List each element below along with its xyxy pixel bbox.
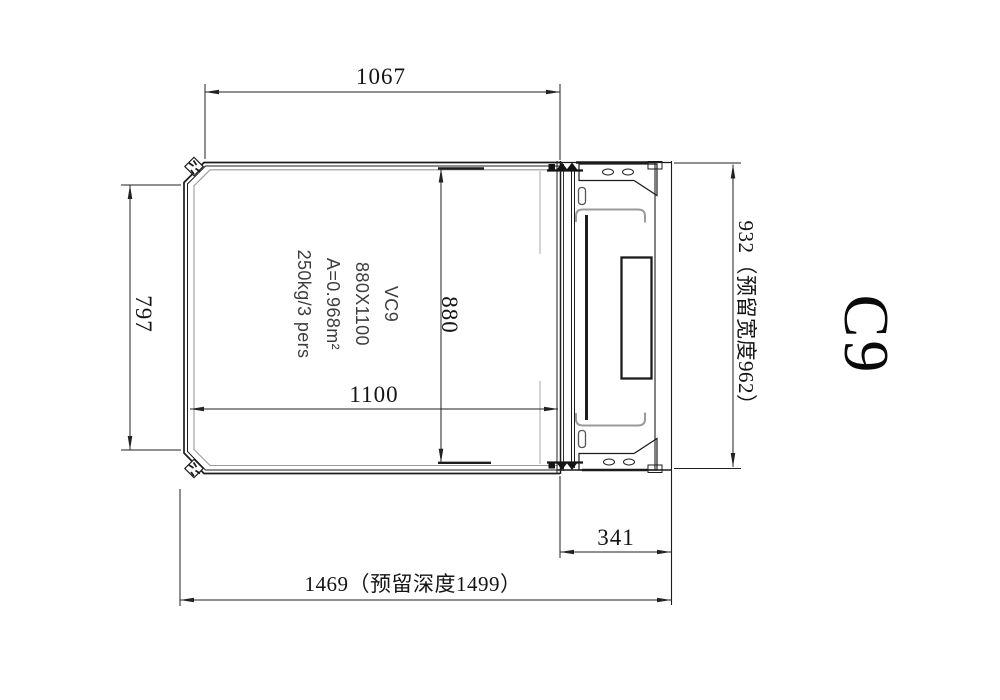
cabin-area: A=0.968m²	[318, 244, 347, 364]
dim-label-left-height: 797	[130, 259, 156, 369]
cabin-info-block: VC9 880X1100 A=0.968m² 250kg/3 pers	[287, 244, 405, 364]
cabin-size: 880X1100	[347, 244, 376, 364]
door-sill-lines	[540, 161, 575, 474]
product-code-label: C9	[833, 280, 903, 390]
header-plate-top	[579, 162, 662, 196]
elevator-plan-drawing: 1067 797 880 1100 341 1469（预留深度1499） 932…	[0, 0, 1000, 700]
dimension-932	[674, 163, 741, 469]
dim-label-cabin-height: 880	[436, 260, 462, 370]
dim-label-total-depth: 1469（预留深度1499）	[283, 568, 543, 598]
cabin-model: VC9	[376, 244, 405, 364]
door-coupling-bottom	[547, 462, 583, 470]
dim-label-door-side: 341	[561, 525, 671, 551]
dim-label-top-width: 1067	[326, 64, 436, 90]
dim-label-cabin-width: 1100	[319, 382, 429, 408]
corner-fitting-top-left	[185, 157, 203, 175]
door-panel	[622, 258, 652, 379]
dimension-1067	[205, 84, 560, 160]
dim-label-total-width: 932（预留宽度962）	[732, 198, 762, 438]
corner-fitting-bottom-left	[185, 459, 203, 477]
header-plate-bottom	[579, 439, 662, 473]
cabin-capacity: 250kg/3 pers	[289, 244, 318, 364]
